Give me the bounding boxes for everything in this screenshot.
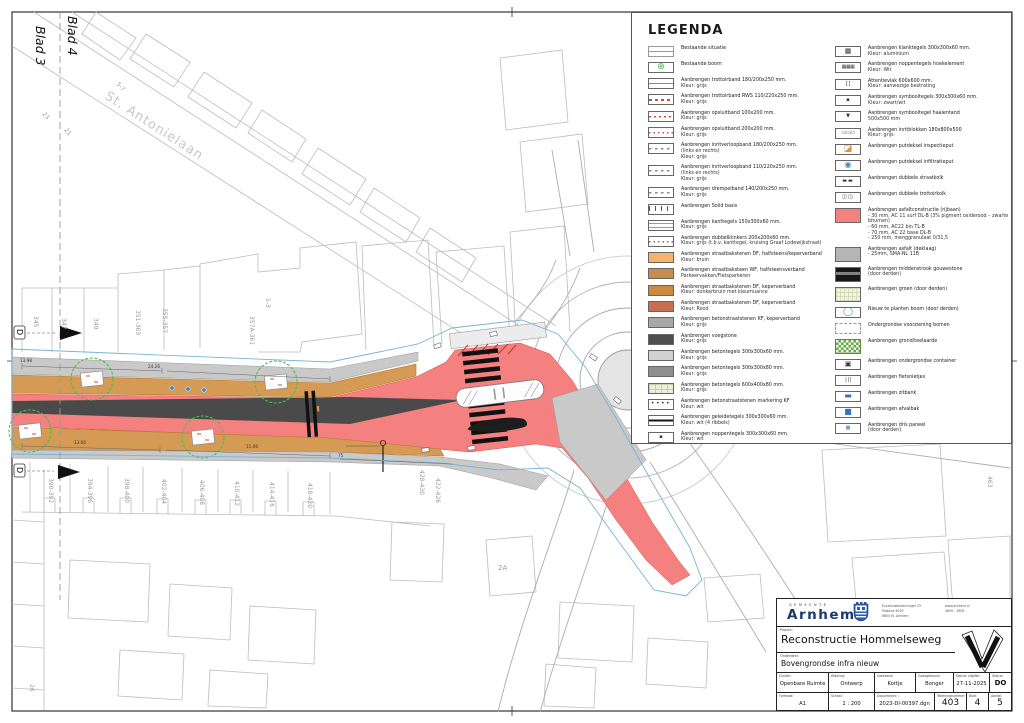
- legend-title: LEGENDA: [648, 23, 1011, 38]
- schaal-value: 1 : 200: [829, 701, 874, 707]
- legend-label: Aanbrengen inritblokken 180x800x500Kleur…: [868, 128, 1012, 139]
- legend-label: Aanbrengen noppentegels hoekelementKleur…: [868, 62, 1012, 73]
- legend-label: Aanbrengen noppentegels 300x300x60 mm.Kl…: [681, 432, 825, 443]
- legend-item: ▪Aanbrengen noppentegels 300x300x60 mm.K…: [648, 432, 825, 443]
- legend-swatch: ▪: [648, 432, 674, 443]
- legend-item: Aanbrengen asfalt (deklaag)- 25mm, SMA-N…: [835, 247, 1012, 262]
- svg-text:24.26: 24.26: [148, 364, 160, 369]
- legend-swatch: [648, 127, 674, 138]
- svg-text:410-412: 410-412: [233, 481, 240, 506]
- legend-swatch: [648, 415, 674, 426]
- legend-label: Aanbrengen betontegels 300x300x60 mm.Kle…: [681, 350, 825, 361]
- formaat-value: A1: [777, 701, 828, 707]
- legend-label: Aanbrengen dubbele trottoirkolk: [868, 192, 1012, 198]
- legend-item: ▬Aanbrengen zitbank: [835, 391, 1012, 402]
- legend-column-left: Bestaande situatie⊕Bestaande boomAanbren…: [648, 46, 825, 448]
- aantal-value: 5: [989, 698, 1011, 708]
- municipality-contact: www.arnhem.nl 0800 - 1809: [945, 604, 970, 614]
- legend-swatch: ▣: [835, 359, 861, 370]
- legend-swatch: [648, 111, 674, 122]
- svg-text:355-357: 355-357: [161, 308, 168, 333]
- tekeningnummer-value: 403: [935, 698, 966, 708]
- legend-item: ◉Aanbrengen putdeksel infiltratieput: [835, 160, 1012, 171]
- legend-item: ••••Aanbrengen betonstraatstenen markeri…: [648, 399, 825, 410]
- svg-text:428-430: 428-430: [418, 470, 425, 495]
- legend-item: Aanbrengen asfaltconstructie (rijbaan)- …: [835, 208, 1012, 242]
- legend-swatch: ▦▦▦: [835, 62, 861, 73]
- legend-item: Ondergrondse voorziening bomen: [835, 323, 1012, 334]
- legend-label: Bestaande boom: [681, 62, 825, 68]
- svg-text:D: D: [15, 329, 24, 335]
- svg-text:414-416: 414-416: [268, 482, 275, 507]
- legend-item: Aanbrengen Solid basis: [648, 204, 825, 215]
- legend-item: Aanbrengen straatbaksteen WF, halfsteens…: [648, 268, 825, 279]
- legend-item: Aanbrengen trottoirband 180/200x250 mm.K…: [648, 78, 825, 89]
- getekend-value: Kortje: [875, 681, 915, 687]
- svg-text:390-392: 390-392: [47, 478, 54, 503]
- legend-item: ■Aanbrengen afvalbak: [835, 407, 1012, 418]
- title-block-header: GEMEENTE Arnhem Eusebiusbuitensingel 53 …: [777, 599, 1011, 627]
- parcels-south-row: [22, 462, 430, 526]
- legend-label: Aanbrengen afvalbak: [868, 407, 1012, 413]
- legend-item: Aanbrengen betontegels 300x300x80 mm.Kle…: [648, 366, 825, 377]
- legend-label: Aanbrengen asfalt (deklaag)- 25mm, SMA-N…: [868, 247, 1012, 258]
- svg-text:418-420: 418-420: [306, 483, 313, 508]
- legend-swatch: [648, 143, 674, 154]
- legend-item: | | |Aanbrengen fietsnietjes: [835, 375, 1012, 386]
- legend-item: Aanbrengen straatbakstenen DF, keperverb…: [648, 301, 825, 312]
- title-block: GEMEENTE Arnhem Eusebiusbuitensingel 53 …: [776, 598, 1012, 711]
- legend-item: ▬▬Aanbrengen dubbele straatkolk: [835, 176, 1012, 187]
- legend-label: Aanbrengen kanttegels 150x300x60 mm.Kleu…: [681, 220, 825, 231]
- legend-label: Aanbrengen straatbakstenen DF, keperverb…: [681, 285, 825, 296]
- svg-text:402-404: 402-404: [160, 479, 167, 504]
- municipality-name: Arnhem: [787, 607, 856, 623]
- svg-text:349: 349: [92, 318, 99, 330]
- legend-item: ▪Aanbrengen symbooltegels 300x300x60 mm.…: [835, 95, 1012, 106]
- svg-text:345: 345: [32, 316, 39, 328]
- buildings-northwest: [82, 12, 588, 282]
- legend-swatch: ▼: [835, 111, 861, 122]
- legend-label: Aanbrengen inritverloopband 180/200x250 …: [681, 143, 825, 160]
- infiltration-manhole: [170, 386, 174, 390]
- legend-item: Aanbrengen drempelband 140/200x250 mm.Kl…: [648, 187, 825, 198]
- legend-label: Aanbrengen betonstraatstenen KF, keperve…: [681, 317, 825, 328]
- street-corridor: [12, 322, 690, 585]
- inspection-manhole-icon: ◪: [835, 144, 861, 155]
- infiltration-manhole: [186, 387, 190, 391]
- legend-label: Aanbrengen dubbelklinkers 200x200x60 mm.…: [681, 236, 825, 247]
- legend-swatch: [648, 317, 674, 328]
- legend-swatch: ▪: [835, 95, 861, 106]
- legend-label: Aanbrengen drempelband 140/200x250 mm.Kl…: [681, 187, 825, 198]
- project-title: Reconstructie Hommelseweg: [781, 633, 941, 646]
- legend-label: Nieuw te planten boom (door derden): [868, 307, 1012, 313]
- street-st-antonielaan-lines: [12, 12, 556, 358]
- fields-row-1: Cluster:Openbare Ruimte Afdeling:Ontwerp…: [777, 673, 1011, 693]
- svg-text:13.06: 13.06: [74, 440, 86, 445]
- legend-swatch: [648, 165, 674, 176]
- legend-label: Aanbrengen dubbele straatkolk: [868, 176, 1012, 182]
- status-value: DO: [990, 679, 1011, 687]
- afdeling-value: Ontwerp: [829, 681, 874, 687]
- datum-value: 27-11-2025: [954, 681, 989, 687]
- svg-text:D: D: [15, 467, 24, 473]
- svg-text:422-426: 422-426: [434, 478, 441, 503]
- legend-swatch: [648, 301, 674, 312]
- legend-swatch: [648, 383, 674, 394]
- legend-swatch: ▦: [835, 46, 861, 57]
- legend-label: Aanbrengen Solid basis: [681, 204, 825, 210]
- legend-label: Aanbrengen inritverloopband 110/220x250 …: [681, 165, 825, 182]
- legend-column-right: ▦Aanbrengen klanktegels 300x300x60 mm.Kl…: [835, 46, 1012, 448]
- legend-swatch: [648, 236, 674, 247]
- legend-label: Aanbrengen middenstrook gouwestone(door …: [868, 267, 1012, 278]
- legend-item: Aanbrengen grond/teelaarde: [835, 339, 1012, 354]
- legend-item: ⊕Bestaande boom: [648, 62, 825, 73]
- drawing-page: { "colors":{ "red_asphalt":"#f4807f","ta…: [0, 0, 1024, 723]
- legend-swatch: ◫◫: [835, 192, 861, 203]
- legend-item: Aanbrengen opsluitband 200x200 mm.Kleur:…: [648, 127, 825, 138]
- legend-swatch: [835, 323, 861, 334]
- svg-text:26: 26: [28, 684, 35, 692]
- arnhem-coat-of-arms-icon: [853, 602, 869, 622]
- legend-swatch: [648, 268, 674, 279]
- legend-item: Aanbrengen kanttegels 150x300x60 mm.Kleu…: [648, 220, 825, 231]
- legend-item: [ ]Attentievlak 600x600 mm.Kleur: aanwez…: [835, 79, 1012, 90]
- legend-swatch: [835, 339, 861, 354]
- legend-label: Aanbrengen straatbakstenen DF, halfsteen…: [681, 252, 825, 263]
- onderdeel-value: Bovengrondse infra nieuw: [781, 659, 879, 668]
- legend-label: Ondergrondse voorziening bomen: [868, 323, 1012, 329]
- legend-swatch: ■: [835, 407, 861, 418]
- cluster-value: Openbare Ruimte: [777, 681, 828, 687]
- legend-swatch: [ ]: [835, 79, 861, 90]
- svg-text:394-396: 394-396: [86, 478, 93, 503]
- svg-text:1-3: 1-3: [264, 298, 271, 308]
- legend-label: Attentievlak 600x600 mm.Kleur: aanwezige…: [868, 79, 1012, 90]
- legend-swatch: [648, 334, 674, 345]
- svg-text:13.98: 13.98: [20, 358, 32, 363]
- legend-item: ■Aanbrengen dris paneel(door derden): [835, 423, 1012, 434]
- legend-item: ◪Aanbrengen putdeksel inspectieput: [835, 144, 1012, 155]
- legend-item: Aanbrengen betonstraatstenen KF, keperve…: [648, 317, 825, 328]
- left-edge-parcels: [12, 470, 44, 710]
- legend-swatch: [648, 285, 674, 296]
- legend-label: Aanbrengen betontegels 300x300x80 mm.Kle…: [681, 366, 825, 377]
- new-tree-icon: ◯: [835, 307, 861, 318]
- svg-text:351-363: 351-363: [134, 310, 141, 335]
- legend-item: Aanbrengen middenstrook gouwestone(door …: [835, 267, 1012, 282]
- legend-label: Aanbrengen ondergrondse container: [868, 359, 1012, 365]
- legend-item: Aanbrengen geleidetegels 300x300x60 mm.K…: [648, 415, 825, 426]
- existing-situation-swatch: [648, 46, 674, 57]
- legend-swatch: ▭▭▭: [835, 128, 861, 139]
- legend-label: Aanbrengen zitbank: [868, 391, 1012, 397]
- legend-item: Aanbrengen trottoirband RWS 110/220x250 …: [648, 94, 825, 105]
- goedgekeurd-value: Bonger: [916, 681, 953, 687]
- legend-item: Aanbrengen straatbakstenen DF, keperverb…: [648, 285, 825, 296]
- legend-swatch: [648, 252, 674, 263]
- legend-item: ▦▦▦Aanbrengen noppentegels hoekelementKl…: [835, 62, 1012, 73]
- legend-item: Aanbrengen inritverloopband 110/220x250 …: [648, 165, 825, 182]
- legend-item: ◯Nieuw te planten boom (door derden): [835, 307, 1012, 318]
- legend-swatch: [835, 287, 861, 302]
- legend-swatch: [648, 220, 674, 231]
- svg-text:5-7: 5-7: [114, 81, 126, 93]
- svg-text:406-408: 406-408: [198, 480, 205, 505]
- legend-label: Aanbrengen putdeksel inspectieput: [868, 144, 1012, 150]
- street-name-label: St. Antonielaan: [102, 89, 206, 164]
- legend-label: Aanbrengen voegstoneKleur: grijs: [681, 334, 825, 345]
- legend-swatch: [648, 366, 674, 377]
- asphalt-swatch: [835, 208, 861, 223]
- legend-label: Aanbrengen klanktegels 300x300x60 mm.Kle…: [868, 46, 1012, 57]
- svg-text:21: 21: [62, 127, 72, 137]
- legend-swatch: [648, 78, 674, 89]
- sheet-label-blad4: Blad 4: [65, 16, 80, 56]
- legend-label: Aanbrengen betonstraatstenen markering K…: [681, 399, 825, 410]
- legend-label: Aanbrengen asfaltconstructie (rijbaan)- …: [868, 208, 1012, 242]
- north-arrow-icon: [956, 629, 1008, 673]
- legend-swatch: ••••: [648, 399, 674, 410]
- sheet-label-blad3: Blad 3: [33, 26, 48, 66]
- svg-text:11.06: 11.06: [246, 444, 258, 449]
- legend-item: ◫◫Aanbrengen dubbele trottoirkolk: [835, 192, 1012, 203]
- legend-item: Aanbrengen betontegels 600x400x80 mm.Kle…: [648, 383, 825, 394]
- legend-label: Aanbrengen geleidetegels 300x300x60 mm.K…: [681, 415, 825, 426]
- svg-text:357A-361: 357A-361: [248, 316, 255, 345]
- onderdeel-label: Onderdeel:: [780, 654, 799, 658]
- legend-item: Aanbrengen opsluitband 100x200 mm.Kleur:…: [648, 111, 825, 122]
- legend-label: Aanbrengen straatbaksteen WF, halfsteens…: [681, 268, 825, 279]
- legend-label: Aanbrengen trottoirband 180/200x250 mm.K…: [681, 78, 825, 89]
- legend-label: Aanbrengen symbooltegels 300x300x60 mm.K…: [868, 95, 1012, 106]
- svg-text:347: 347: [60, 318, 67, 330]
- svg-text:398-400: 398-400: [123, 478, 130, 503]
- legend-item: Bestaande situatie: [648, 46, 825, 57]
- legend-item: ▼Aanbrengen symbooltegel haaientand500x5…: [835, 111, 1012, 122]
- legend-label: Aanbrengen groen (door derden): [868, 287, 1012, 293]
- legend-label: Bestaande situatie: [681, 46, 825, 52]
- legend-label: Aanbrengen opsluitband 200x200 mm.Kleur:…: [681, 127, 825, 138]
- sheet-divider: Blad 4 Blad 3: [33, 12, 80, 600]
- svg-text:463: 463: [986, 476, 993, 488]
- legend-label: Aanbrengen putdeksel infiltratieput: [868, 160, 1012, 166]
- legend-swatch: ▬▬: [835, 176, 861, 187]
- legend-item: Aanbrengen straatbakstenen DF, halfsteen…: [648, 252, 825, 263]
- legend-label: Aanbrengen trottoirband RWS 110/220x250 …: [681, 94, 825, 105]
- svg-text:23: 23: [40, 111, 50, 121]
- svg-text:75: 75: [338, 453, 344, 458]
- municipality-address: Eusebiusbuitensingel 53 Postbus 9029 680…: [882, 604, 921, 619]
- existing-tree-icon: ⊕: [648, 62, 674, 73]
- legend-item: ▣Aanbrengen ondergrondse container: [835, 359, 1012, 370]
- legend-item: Aanbrengen dubbelklinkers 200x200x60 mm.…: [648, 236, 825, 247]
- legend-swatch: [648, 204, 674, 215]
- infiltration-manhole-icon: ◉: [835, 160, 861, 171]
- legend-label: Aanbrengen straatbakstenen DF, keperverb…: [681, 301, 825, 312]
- legend-swatch: ■: [835, 423, 861, 434]
- legend-label: Aanbrengen symbooltegel haaientand500x50…: [868, 111, 1012, 122]
- legend-item: ▦Aanbrengen klanktegels 300x300x60 mm.Kl…: [835, 46, 1012, 57]
- legend-label: Aanbrengen betontegels 600x400x80 mm.Kle…: [681, 383, 825, 394]
- legend-swatch: [648, 94, 674, 105]
- legend-item: Aanbrengen voegstoneKleur: grijs: [648, 334, 825, 345]
- legend-label: Aanbrengen dris paneel(door derden): [868, 423, 1012, 434]
- legend-swatch: ▬: [835, 391, 861, 402]
- legend-swatch: [648, 187, 674, 198]
- legend-label: Aanbrengen opsluitband 100x200 mm.Kleur:…: [681, 111, 825, 122]
- documentnr-value: 2023-DI-00397.dgn: [875, 701, 934, 707]
- legend-swatch: [648, 350, 674, 361]
- legend-swatch: [835, 267, 861, 282]
- project-label: Project:: [780, 628, 793, 632]
- legend-swatch: | | |: [835, 375, 861, 386]
- legend-panel: LEGENDA Bestaande situatie⊕Bestaande boo…: [631, 12, 1012, 444]
- legend-label: Aanbrengen fietsnietjes: [868, 375, 1012, 381]
- blad-value: 4: [967, 698, 988, 708]
- infiltration-manhole: [202, 388, 206, 392]
- legend-item: Aanbrengen betontegels 300x300x60 mm.Kle…: [648, 350, 825, 361]
- legend-swatch: [835, 247, 861, 262]
- legend-item: ▭▭▭Aanbrengen inritblokken 180x800x500Kl…: [835, 128, 1012, 139]
- legend-label: Aanbrengen grond/teelaarde: [868, 339, 1012, 345]
- legend-item: Aanbrengen inritverloopband 180/200x250 …: [648, 143, 825, 160]
- fields-row-2: Formaat:A1 Schaal:1 : 200 Documentnr.:20…: [777, 693, 1011, 711]
- svg-text:2A: 2A: [498, 564, 507, 572]
- legend-item: Aanbrengen groen (door derden): [835, 287, 1012, 302]
